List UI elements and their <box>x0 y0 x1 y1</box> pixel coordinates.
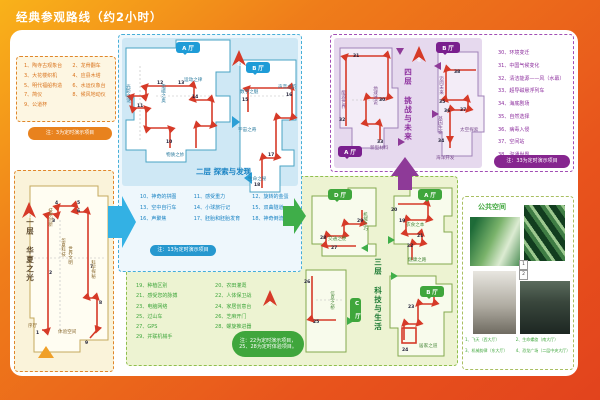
photo-caption: 4、恐龙广场（二层中央大厅） <box>516 348 573 354</box>
exhibit-item: 19、种植区别 <box>136 283 215 291</box>
exhibit-item: 31、中国气候变化 <box>498 63 574 71</box>
floor2-exhibit-list: 10、神奇的拼图 11、感受重力 12、旋转的金蛋 13、空中自行车 14、小球… <box>140 194 298 223</box>
hall-badge-f3-a: A 厅 <box>418 189 442 200</box>
note-text: 注：33为定时演示项目 <box>506 158 557 165</box>
photo-tag-1: 1 <box>519 260 528 270</box>
exhibit-item: 35、自然选择 <box>498 114 574 122</box>
area-xinxi-zhiqiao: 信息之桥 <box>329 291 334 309</box>
area-huaxia-keji: 华夏科技 <box>60 238 65 256</box>
museum-tour-map: 经典参观路线（约2小时） <box>0 0 600 400</box>
floor3-note-pill: 注：22为定时演示项目， 25、28为定时体验项目。 <box>232 331 304 357</box>
exhibit-item: 33、超导磁悬浮列车 <box>498 88 574 96</box>
floor2-note-pill: 注：13为定时演示项目 <box>150 245 216 256</box>
exhibit-item: 23、电脑网络 <box>136 304 215 312</box>
photo-mechanical-rhythm <box>518 279 572 336</box>
floor3-title: 三层 科技与生活 <box>374 258 382 332</box>
photo-caption: 3、机械韵律（东大厅） <box>465 348 516 354</box>
hall-badge-f3-b: B 厅 <box>420 286 444 297</box>
area-shijie-wenming: 世界文明 <box>67 246 72 264</box>
floor4-note-pill: 注：33为定时演示项目 <box>494 155 570 168</box>
exhibit-item: 25、过山车 <box>136 314 215 322</box>
floor2-map-area <box>122 38 298 186</box>
exhibit-item: 16、声聚焦 <box>140 216 194 224</box>
note-text-line2: 25、28为定时体验项目。 <box>239 344 297 351</box>
exhibit-item: 14、小球旅行记 <box>194 205 252 213</box>
hall-badge-f2-a: A 厅 <box>176 42 200 53</box>
exhibit-item: 15、双曲隧道 <box>252 205 298 213</box>
area-jiyin-shengming: 基因生命 <box>437 116 442 134</box>
photo-tag-2: 2 <box>519 270 528 280</box>
exhibit-item: 22、人体保卫战 <box>215 293 288 301</box>
exhibit-item: 37、空间站 <box>498 139 574 147</box>
exhibit-item: 13、空中自行车 <box>140 205 194 213</box>
exhibit-item: 21、感受您的脉搏 <box>136 293 215 301</box>
public-space-title: 公共空间 <box>478 202 506 212</box>
exhibit-item: 36、病毒入侵 <box>498 127 574 135</box>
photo-caption: 1、飞天（西大厅） <box>465 337 516 343</box>
area-diqiu-shushuo: 地球述说 <box>372 86 377 104</box>
floor1-title: 一层 华夏之光 <box>26 218 34 283</box>
public-space-captions: 1、飞天（西大厅） 2、生命螺旋（南大厅） 3、机械韵律（东大厅） 4、恐龙广场… <box>465 337 573 354</box>
floor2-title: 二层 探索与发现 <box>196 166 251 177</box>
area-guangying-zhimi: 光影之谜 <box>125 84 130 102</box>
exhibit-item: 9、公道杯 <box>24 102 72 110</box>
floor1-exhibit-list: 1、陶寺古观象台 2、龙骨翻车 3、大花楼织机 4、应县木塔 5、明代福船构造 … <box>24 63 112 110</box>
exhibit-item: 30、环境变迁 <box>498 50 574 58</box>
exhibit-item: 34、海底剧场 <box>498 101 574 109</box>
floor4-exhibit-list: 30、环境变迁 31、中国气候变化 32、清洁能源——风（水幕） 33、超导磁悬… <box>498 50 574 160</box>
hall-badge-f3-d: D 厅 <box>328 189 352 200</box>
area-nengyuan-shijie: 能源世界 <box>340 90 345 108</box>
exhibit-item: 27、GPS <box>136 324 215 332</box>
exhibit-item: 12、旋转的金蛋 <box>252 194 298 202</box>
hall-badge-f4-b: B 厅 <box>436 42 460 53</box>
exhibit-item: 4、应县木塔 <box>72 73 112 81</box>
photo-life-spiral <box>522 203 567 263</box>
exhibit-item: 3、大花楼织机 <box>24 73 72 81</box>
area-dianci-zhiao: 电磁之奥 <box>160 84 165 102</box>
note-text: 注：3为定时演示项目 <box>46 130 94 137</box>
area-maixiang-weilai: 迈向未来 <box>438 76 443 94</box>
note-text: 注：13为定时演示项目 <box>157 247 208 254</box>
floor1-note-pill: 注：3为定时演示项目 <box>28 127 112 140</box>
page-title: 经典参观路线（约2小时） <box>16 9 163 25</box>
hall-badge-f4-a: A 厅 <box>338 146 362 157</box>
exhibit-item: 7、简仪 <box>24 92 72 100</box>
exhibit-item: 29、并联机械手 <box>136 334 215 342</box>
exhibit-item: 2、龙骨翻车 <box>72 63 112 71</box>
photo-caption: 2、生命螺旋（南大厅） <box>516 337 573 343</box>
exhibit-item: 5、明代福船构造 <box>24 83 72 91</box>
floor4-title: 四层 挑战与未来 <box>404 68 412 142</box>
exhibit-item: 11、感受重力 <box>194 194 252 202</box>
area-jishu-chuangxin: 技术创新 <box>47 208 52 226</box>
exhibit-item: 6、水运仪象台 <box>72 83 112 91</box>
exhibit-item: 20、农田灌溉 <box>215 283 288 291</box>
photo-dinosaur-plaza <box>471 269 518 336</box>
photo-feitian-sculpture <box>468 215 522 268</box>
hall-badge-f3-c: C 厅 <box>350 298 361 322</box>
exhibit-item: 10、神奇的拼图 <box>140 194 194 202</box>
exhibit-item: 18、神奇倒流 <box>252 216 298 224</box>
exhibit-item: 32、清洁能源——风（水幕） <box>498 76 574 84</box>
area-jixie-zhiqiao: 机械之巧 <box>362 212 367 230</box>
exhibit-item: 26、芝麻开门 <box>215 314 288 322</box>
area-kexue-tanmi: 科学探秘 <box>90 260 95 278</box>
exhibit-item: 24、家居创意台 <box>215 304 288 312</box>
hall-badge-f2-b: B 厅 <box>246 62 270 73</box>
exhibit-item: 17、胚胎和胚胎发育 <box>194 216 252 224</box>
exhibit-item: 8、候风地动仪 <box>72 92 112 100</box>
exhibit-item: 1、陶寺古观象台 <box>24 63 72 71</box>
